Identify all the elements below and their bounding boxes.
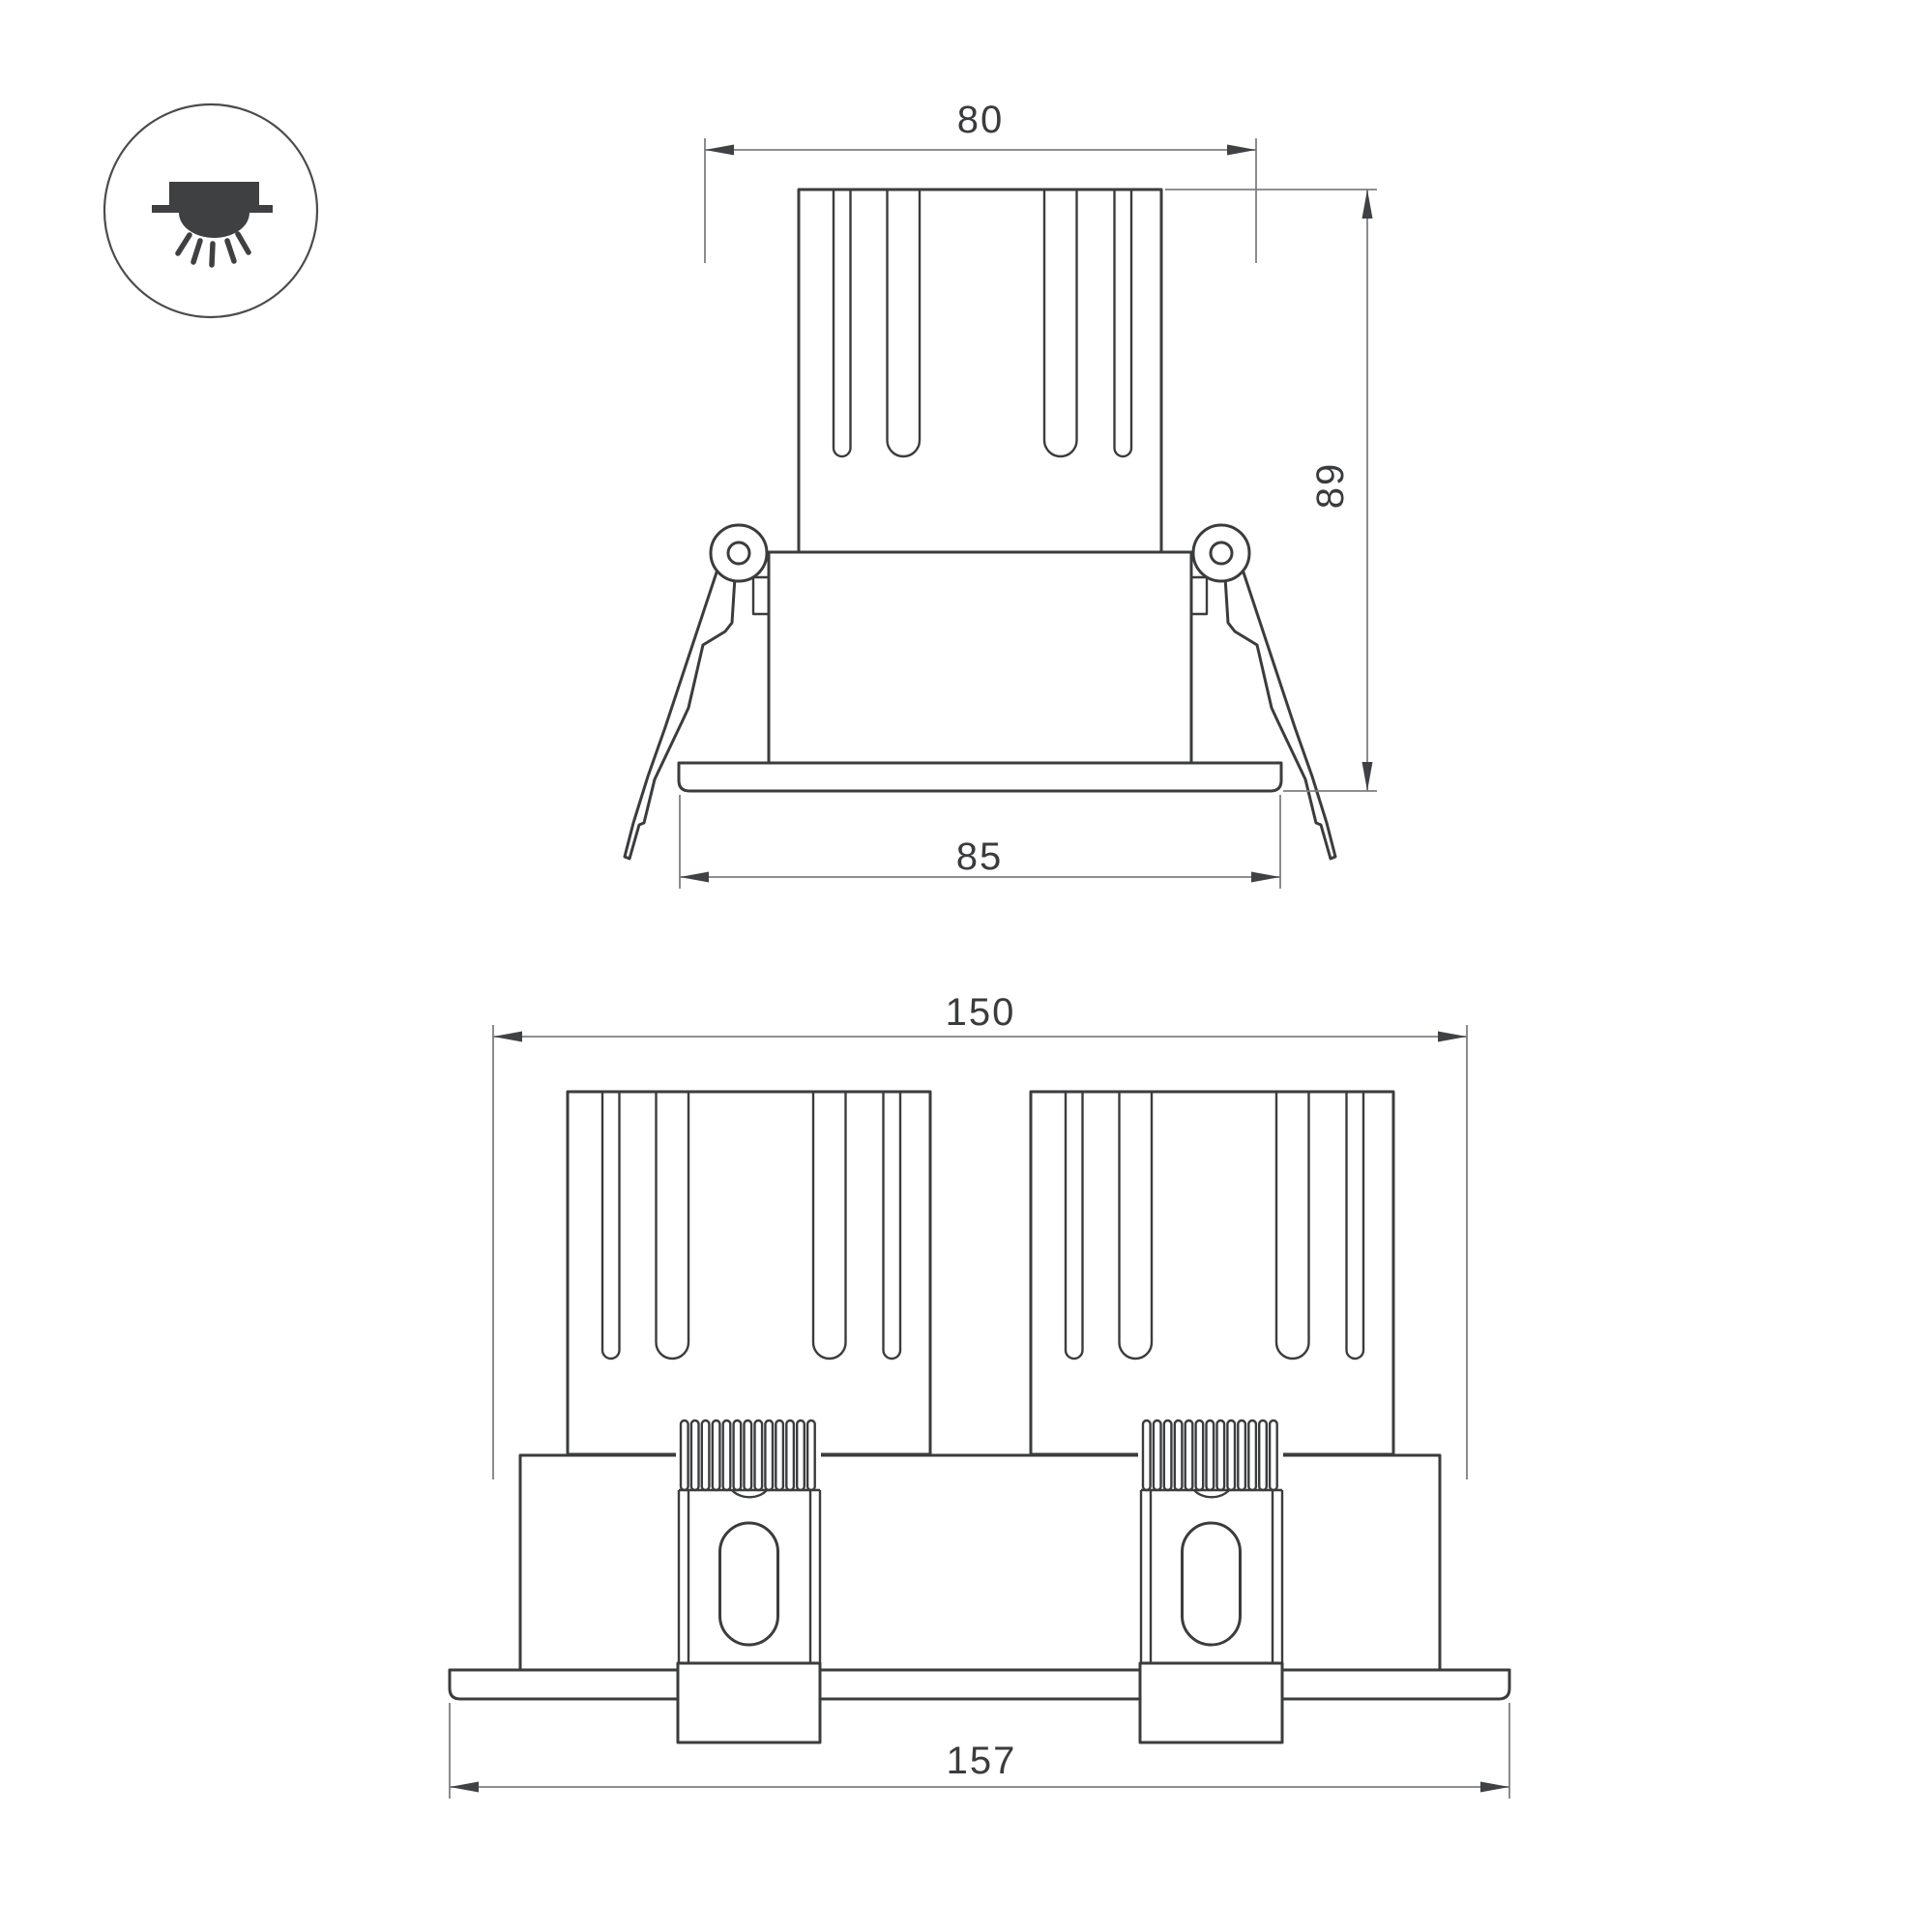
twin-module-view: 150 157: [450, 991, 1509, 1799]
icon-ceiling-line: [152, 205, 273, 213]
bracket-foot-left: [678, 1663, 820, 1742]
dim-label-twin-top-width: 150: [946, 991, 1016, 1034]
spring-clip-left: [625, 525, 769, 859]
dim-label-top-width: 80: [957, 99, 1005, 141]
dim-label-twin-flange-width: 157: [947, 1740, 1017, 1782]
trim-housing: [769, 552, 1191, 763]
trim-flange: [679, 763, 1281, 791]
icon-lamp-body: [169, 182, 259, 207]
heatsink-block-right: [1031, 1092, 1393, 1454]
trim-flange-twin: [450, 1670, 1509, 1699]
dim-label-overall-height: 89: [1309, 462, 1352, 510]
recessed-downlight-icon: [104, 104, 317, 317]
dim-label-flange-width: 85: [956, 835, 1004, 878]
trim-housing-twin: [520, 1455, 1440, 1670]
heatsink-block: [799, 190, 1161, 552]
spring-clip-right: [1191, 525, 1335, 859]
single-module-view: 80 85 89: [625, 99, 1377, 889]
dimension-twin-flange-width: 157: [450, 1703, 1509, 1799]
bracket-foot-right: [1140, 1663, 1282, 1742]
dimension-drawing-canvas: 80 85 89: [0, 0, 1932, 1932]
technical-drawing-page: 80 85 89: [0, 0, 1932, 1932]
heatsink-block-left: [568, 1092, 930, 1454]
dimension-flange-width: 85: [680, 795, 1280, 889]
